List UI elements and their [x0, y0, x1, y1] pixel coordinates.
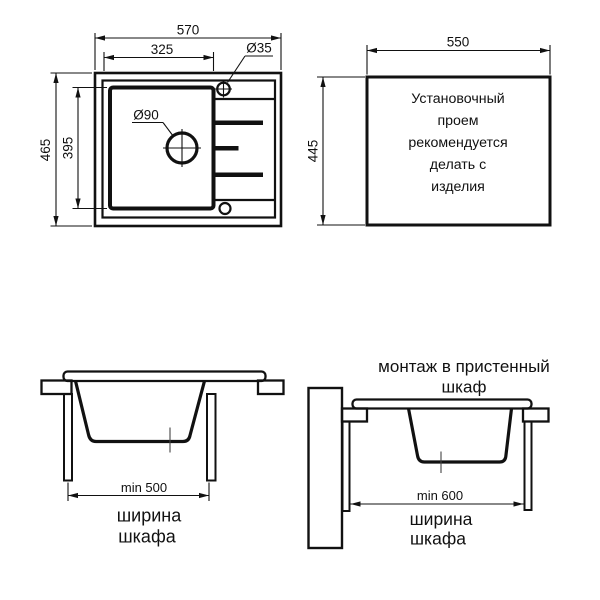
- wall-mount-title-line1: монтаж в пристенный: [378, 357, 550, 376]
- dim-395-label: 395: [61, 137, 76, 160]
- sink-flange: [64, 372, 266, 382]
- drainboard-rib: [215, 121, 264, 126]
- overflow-hole: [220, 203, 231, 214]
- wall-mount-title-line2: шкаф: [442, 378, 487, 397]
- dim-445: 445: [306, 77, 366, 225]
- countertop-right: [258, 381, 284, 395]
- dim-min600-label: min 600: [417, 488, 463, 503]
- section-standard: min 500 ширина шкафа: [42, 372, 284, 547]
- dim-570-label: 570: [177, 23, 200, 38]
- brick-wall: [309, 388, 343, 548]
- cutout-note: Установочный проем рекомендуется делать …: [408, 91, 507, 195]
- cabinet-panel-left: [64, 394, 72, 481]
- dim-min500: min 500: [68, 480, 209, 501]
- cabinet-width-caption-line1: ширина: [117, 506, 183, 526]
- dim-min600: min 600: [351, 488, 524, 504]
- tap-hole-leader: [228, 56, 246, 83]
- sink-technical-drawing: Ø90 Ø35 570 325 465: [0, 0, 600, 600]
- cutout-note-line: рекомендуется: [408, 135, 507, 151]
- countertop-left: [342, 409, 367, 422]
- cutout-view: 550 445 Установочный проем рекомендуется…: [306, 35, 551, 226]
- tap-hole-diameter-label: Ø35: [246, 41, 272, 56]
- cabinet-panel-right: [525, 422, 532, 511]
- countertop-right: [523, 409, 549, 422]
- dim-325: 325: [104, 42, 214, 71]
- bowl-section: [409, 409, 512, 463]
- plan-view: Ø90 Ø35 570 325 465: [38, 23, 281, 227]
- cutout-note-line: Установочный: [411, 91, 504, 107]
- sink-flange: [353, 400, 532, 409]
- cabinet-width-caption-line2: шкафа: [118, 527, 177, 547]
- dim-325-label: 325: [151, 42, 174, 57]
- cutout-note-line: делать с: [430, 157, 486, 173]
- cabinet-width-caption-line1: ширина: [410, 509, 473, 529]
- bowl-section: [76, 381, 205, 442]
- dim-395: 395: [61, 88, 108, 209]
- sink-inner-edge: [103, 81, 276, 218]
- dim-445-label: 445: [306, 140, 321, 163]
- cutout-note-line: проем: [437, 113, 478, 129]
- drain-leader: [163, 123, 174, 137]
- dim-465-label: 465: [38, 139, 53, 162]
- drawing-canvas: Ø90 Ø35 570 325 465: [0, 0, 600, 600]
- cabinet-width-caption-line2: шкафа: [410, 529, 466, 549]
- dim-min500-label: min 500: [121, 480, 167, 495]
- cabinet-panel-right: [207, 394, 216, 481]
- sink-outline: [95, 73, 281, 226]
- dim-550: 550: [367, 35, 550, 75]
- dim-550-label: 550: [447, 35, 470, 50]
- drainboard-rib: [215, 173, 264, 178]
- cutout-note-line: изделия: [431, 179, 485, 195]
- drainboard-rib: [215, 146, 239, 151]
- section-wall: монтаж в пристенный шкаф min 600 ширина …: [309, 357, 550, 549]
- drain-diameter-label: Ø90: [133, 108, 159, 123]
- cabinet-panel-left: [343, 422, 350, 512]
- countertop-left: [42, 381, 72, 395]
